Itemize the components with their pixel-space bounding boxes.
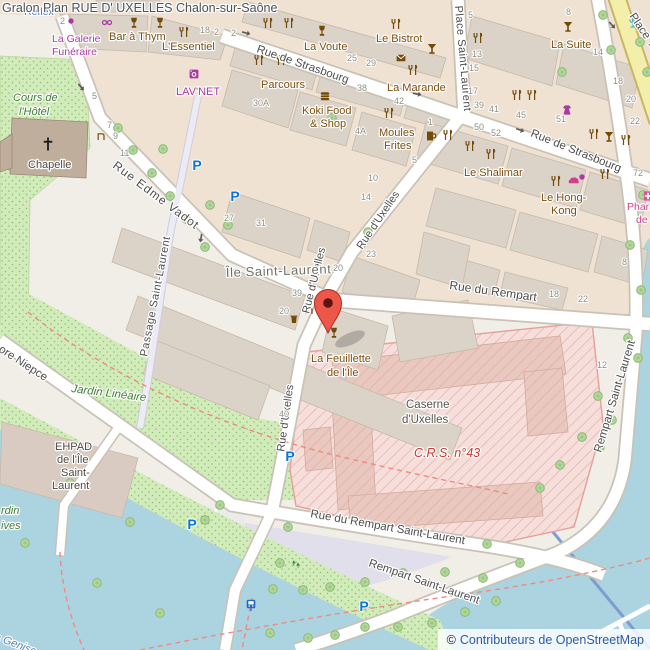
label-l-h-tel: l'Hôtel [19, 106, 50, 118]
label-l-essentiel: L'Essentiel [162, 41, 215, 53]
housenumber-17: 17 [468, 86, 478, 96]
tree-icon [299, 586, 308, 595]
housenumber-2: 2 [60, 16, 65, 26]
tree-icon [483, 540, 492, 549]
label-de-l-le: de l'Île [57, 453, 88, 466]
label-la-voute: La Voute [304, 41, 347, 53]
housenumber-31: 31 [256, 218, 266, 228]
housenumber-50: 50 [474, 122, 484, 132]
tree-icon [216, 501, 225, 510]
parking-icon [359, 598, 368, 614]
housenumber-39: 39 [292, 288, 302, 298]
housenumber-72: 72 [633, 168, 643, 178]
tree-icon [266, 629, 275, 638]
label-d-uxelles: d'Uxelles [402, 414, 449, 426]
label-de-l-le: de l'Île [327, 366, 358, 379]
label-ehpad: EHPAD [55, 441, 92, 453]
housenumber-10: 10 [368, 173, 378, 183]
label-saint: Saint- [61, 467, 90, 479]
label-le-bistrot: Le Bistrot [376, 33, 422, 45]
label-caserne: Caserne [406, 399, 449, 411]
housenumber-22: 22 [630, 116, 640, 126]
label-la-galerie: La Galerie [52, 33, 101, 45]
label-la-suite: La Suite [551, 39, 591, 51]
tree-icon [331, 631, 340, 640]
label-frites: Frites [384, 140, 412, 152]
post-icon [397, 55, 406, 61]
label-fun-raire: Funéraire [52, 46, 97, 58]
housenumber-9: 9 [113, 131, 118, 141]
housenumber-2: 2 [231, 28, 236, 38]
tree-icon [159, 145, 168, 154]
housenumber-38: 38 [357, 83, 367, 93]
label-cours-de: Cours de [13, 92, 58, 104]
tree-icon [558, 68, 567, 77]
parking-icon [230, 188, 239, 204]
housenumber-18: 18 [613, 76, 623, 86]
tree-icon [492, 597, 501, 606]
tree-icon [129, 146, 138, 155]
housenumber-41: 41 [489, 104, 499, 114]
housenumber-51: 51 [556, 114, 566, 124]
label-chapelle: Chapelle [28, 159, 71, 171]
housenumber-39: 39 [474, 100, 484, 110]
tree-icon [361, 623, 370, 632]
page-title: Gralon Plan RUE D' UXELLES Chalon-sur-Sa… [2, 1, 277, 15]
tree-icon [556, 461, 565, 470]
tree-icon [148, 169, 157, 178]
tree-icon [394, 623, 403, 632]
label-la-marande: La Marande [387, 82, 446, 94]
tree-icon [206, 201, 215, 210]
housenumber-14: 14 [593, 47, 603, 57]
tree-icon [326, 583, 335, 592]
parking-icon [192, 157, 201, 173]
housenumber-27: 27 [224, 213, 234, 223]
housenumber-5: 5 [92, 91, 97, 101]
housenumber-12: 12 [597, 360, 607, 370]
tree-icon [201, 516, 210, 525]
tree-icon [269, 585, 278, 594]
label-ives: ives [1, 520, 21, 532]
map-canvas[interactable]: P [0, 0, 650, 650]
label-le-hong: Le Hong- [541, 192, 587, 204]
housenumber-20: 20 [626, 94, 636, 104]
dot-icon [579, 174, 584, 179]
housenumber-5: 5 [468, 10, 473, 20]
tree-icon [276, 559, 285, 568]
tree-icon [156, 609, 165, 618]
label-kong: Kong [551, 205, 577, 217]
label-le-shalimar: Le Shalimar [464, 167, 523, 179]
tree-icon [634, 354, 643, 363]
attribution: © Contributeurs de OpenStreetMap [438, 629, 650, 650]
tree-icon [594, 392, 603, 401]
housenumber-42: 42 [394, 96, 404, 106]
burger-icon [321, 92, 329, 100]
tree-icon [599, 11, 608, 20]
tree-icon [479, 574, 488, 583]
label-rdin: rdin [1, 505, 19, 517]
housenumber-1: 1 [428, 117, 433, 127]
housenumber-11: 11 [120, 148, 129, 158]
tree-icon [201, 243, 210, 252]
tree-icon [637, 286, 646, 295]
tree-icon [536, 484, 545, 493]
tree-icon [578, 433, 587, 442]
tree-icon [21, 539, 30, 548]
tree-icon [361, 578, 370, 587]
tree-icon [93, 579, 102, 588]
attribution-link[interactable]: Contributeurs de OpenStreetMap [460, 633, 644, 647]
housenumber-8: 8 [566, 7, 571, 17]
housenumber-23: 23 [366, 249, 376, 259]
housenumber-4a: 4A [355, 126, 366, 136]
label-shop: & Shop [310, 118, 346, 130]
tree-icon [428, 619, 437, 628]
tree-icon [516, 559, 525, 568]
tree-icon [126, 518, 135, 527]
parking-icon [187, 516, 196, 532]
tree-icon [284, 523, 293, 532]
tree-icon [461, 608, 470, 617]
label-de: de [636, 214, 648, 226]
housenumber-29: 29 [366, 58, 376, 68]
label-c-r-s-n-43: C.R.S. n°43 [414, 446, 480, 460]
copyright-symbol: © [447, 633, 456, 647]
label-laurent: Laurent [52, 480, 89, 492]
label-moules: Moules [379, 127, 415, 139]
housenumber-20: 20 [279, 306, 289, 316]
housenumber-52: 52 [491, 128, 501, 138]
label-koki-food: Koki Food [302, 105, 352, 117]
housenumber-2: 2 [214, 27, 219, 37]
housenumber-20: 20 [333, 263, 343, 273]
label-la-feuillette: La Feuillette [311, 353, 371, 365]
tree-icon [626, 241, 635, 250]
map-screenshot: P [0, 0, 650, 650]
housenumber-18: 18 [200, 25, 210, 35]
label-pharm: Pharm [627, 201, 650, 213]
pharmacy-icon [644, 191, 650, 200]
label-bar-thym: Bar à Thym [109, 31, 166, 43]
housenumber-14: 14 [361, 192, 371, 202]
housenumber-15: 15 [469, 63, 479, 73]
housenumber-22: 22 [578, 294, 588, 304]
housenumber-5: 5 [412, 155, 417, 165]
housenumber-30a: 30A [253, 98, 269, 108]
housenumber-40: 40 [279, 409, 289, 419]
label-parcours: Parcours [261, 79, 306, 91]
tree-icon [441, 568, 450, 577]
housenumber-25: 25 [347, 53, 357, 63]
housenumber-18: 18 [549, 289, 559, 299]
housenumber-45: 45 [516, 110, 526, 120]
housenumber-8: 8 [622, 257, 627, 267]
tree-icon [304, 634, 313, 643]
laundry-icon [190, 70, 199, 79]
tree-icon [643, 68, 650, 77]
housenumber-7: 7 [107, 120, 112, 130]
dot-icon [68, 18, 73, 23]
label-lav-net: LAV'NET [176, 86, 220, 98]
housenumber-13: 13 [472, 49, 482, 59]
tree-icon [607, 46, 616, 55]
